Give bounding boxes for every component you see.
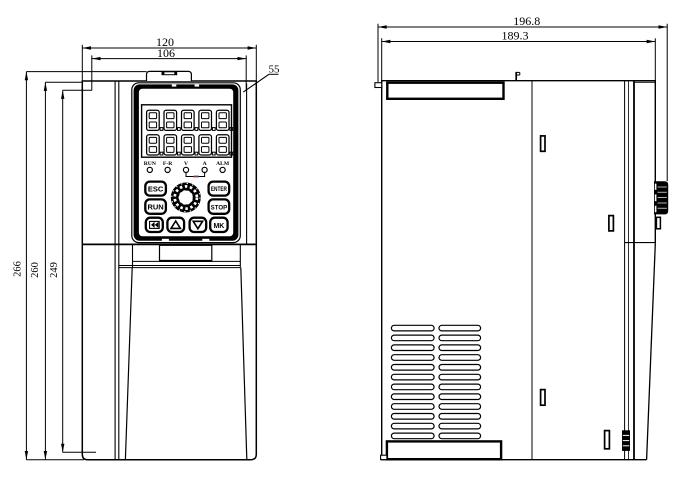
svg-text:55: 55: [269, 64, 281, 76]
svg-text:V: V: [184, 161, 188, 167]
svg-text:266: 266: [13, 261, 24, 277]
svg-text:STOP: STOP: [211, 204, 228, 211]
svg-text:189.3: 189.3: [502, 29, 529, 43]
svg-text:RUN: RUN: [144, 161, 156, 167]
svg-text:ALM: ALM: [216, 161, 230, 167]
svg-text:ESC: ESC: [148, 185, 164, 194]
svg-text:249: 249: [49, 262, 60, 278]
svg-text:F-R: F-R: [163, 161, 173, 167]
svg-text:MK: MK: [213, 223, 224, 230]
svg-text:260: 260: [30, 262, 41, 278]
svg-text:A: A: [203, 161, 207, 167]
svg-text:196.8: 196.8: [513, 14, 540, 28]
svg-text:106: 106: [157, 46, 175, 60]
svg-text:RUN: RUN: [147, 203, 163, 212]
svg-text:ENTER: ENTER: [211, 187, 228, 193]
